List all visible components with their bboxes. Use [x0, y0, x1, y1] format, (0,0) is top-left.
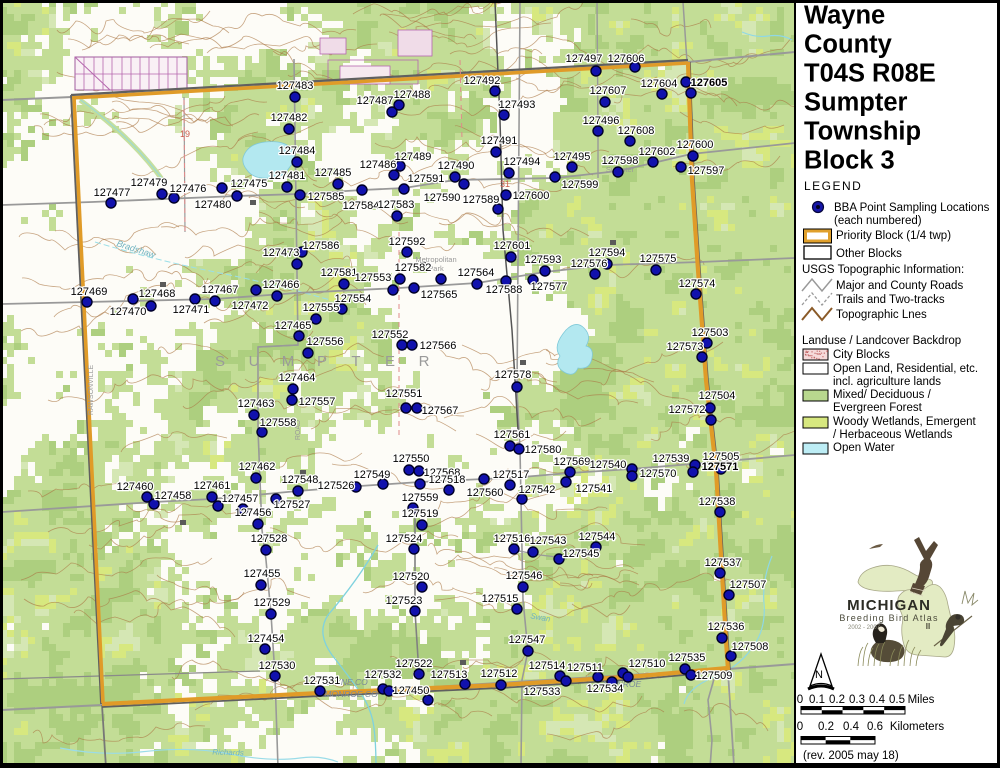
svg-text:127510: 127510	[629, 658, 666, 670]
svg-text:0: 0	[797, 694, 803, 706]
svg-text:S: S	[215, 353, 225, 370]
svg-text:127462: 127462	[239, 461, 276, 473]
svg-text:127583: 127583	[378, 199, 415, 211]
svg-text:127533: 127533	[524, 686, 561, 698]
svg-text:2002 - 2007: 2002 - 2007	[848, 625, 881, 631]
svg-text:127514: 127514	[529, 660, 566, 672]
svg-text:127522: 127522	[396, 658, 433, 670]
svg-text:U: U	[249, 353, 260, 370]
svg-text:127601: 127601	[494, 240, 531, 252]
svg-text:Mixed/ Deciduous /: Mixed/ Deciduous /	[833, 389, 932, 401]
svg-text:127545: 127545	[563, 548, 600, 560]
svg-text:Trails and Two-tracks: Trails and Two-tracks	[836, 294, 945, 306]
svg-text:incl. agriculture lands: incl. agriculture lands	[833, 376, 941, 388]
svg-text:127472: 127472	[232, 300, 269, 312]
svg-text:127454: 127454	[248, 633, 285, 645]
svg-text:127511: 127511	[567, 662, 603, 674]
svg-text:127512: 127512	[481, 668, 518, 680]
svg-text:127477: 127477	[94, 187, 131, 199]
svg-text:127479: 127479	[131, 177, 168, 189]
svg-text:127552: 127552	[372, 329, 409, 341]
svg-text:M: M	[282, 353, 295, 370]
svg-text:127575: 127575	[640, 253, 677, 265]
svg-text:127515: 127515	[482, 593, 519, 605]
svg-text:127528: 127528	[251, 533, 288, 545]
svg-text:127524: 127524	[386, 533, 423, 545]
svg-text:127492: 127492	[464, 75, 501, 87]
svg-text:Sumpter: Sumpter	[804, 89, 908, 117]
svg-text:LEGEND: LEGEND	[804, 179, 862, 193]
svg-text:127592: 127592	[389, 236, 426, 248]
svg-text:127569: 127569	[554, 456, 591, 468]
svg-text:0.3: 0.3	[849, 694, 865, 706]
svg-text:0.4: 0.4	[869, 694, 886, 706]
svg-text:Evergreen Forest: Evergreen Forest	[833, 402, 923, 414]
svg-text:127482: 127482	[271, 112, 308, 124]
svg-text:127534: 127534	[587, 683, 624, 695]
svg-text:127513: 127513	[431, 669, 468, 681]
svg-text:127487: 127487	[357, 95, 394, 107]
svg-text:127600: 127600	[513, 190, 550, 202]
svg-text:MICHIGAN: MICHIGAN	[847, 597, 931, 614]
svg-text:127463: 127463	[238, 398, 275, 410]
svg-text:127456: 127456	[235, 507, 272, 519]
svg-text:127517: 127517	[493, 469, 530, 481]
svg-text:County: County	[804, 31, 893, 59]
svg-text:127531: 127531	[304, 675, 341, 687]
svg-text:127460: 127460	[117, 481, 154, 493]
svg-text:127508: 127508	[732, 641, 769, 653]
svg-text:Landuse / Landcover Backdrop: Landuse / Landcover Backdrop	[802, 335, 961, 347]
svg-text:127586: 127586	[303, 240, 340, 252]
svg-text:127493: 127493	[499, 99, 536, 111]
svg-text:127455: 127455	[244, 568, 281, 580]
svg-text:127565: 127565	[421, 289, 458, 301]
svg-text:127529: 127529	[254, 597, 291, 609]
svg-text:MONROE CO: MONROE CO	[324, 689, 378, 699]
svg-text:0.2: 0.2	[818, 721, 834, 733]
svg-text:City Blocks: City Blocks	[833, 349, 890, 361]
svg-text:N: N	[815, 669, 823, 681]
svg-text:0.5: 0.5	[889, 694, 905, 706]
svg-text:127520: 127520	[393, 571, 430, 583]
svg-text:127466: 127466	[263, 279, 300, 291]
svg-text:127503: 127503	[692, 327, 729, 339]
svg-text:Topographic Lnes: Topographic Lnes	[836, 309, 927, 321]
svg-text:Miles: Miles	[908, 694, 935, 706]
svg-text:127473: 127473	[263, 247, 300, 259]
svg-text:127573: 127573	[667, 341, 704, 353]
svg-text:127572: 127572	[669, 404, 706, 416]
svg-text:127526: 127526	[318, 480, 355, 492]
svg-text:127570: 127570	[640, 468, 677, 480]
svg-text:127600: 127600	[677, 139, 714, 151]
svg-text:(each numbered): (each numbered)	[834, 215, 922, 227]
svg-text:127558: 127558	[260, 417, 297, 429]
svg-text:127599: 127599	[562, 179, 599, 191]
svg-text:127464: 127464	[279, 372, 316, 384]
svg-text:Kilometers: Kilometers	[890, 721, 945, 733]
svg-text:/ Herbaceous Wetlands: / Herbaceous Wetlands	[833, 429, 953, 441]
svg-text:Major and County Roads: Major and County Roads	[836, 280, 963, 292]
svg-text:Block 3: Block 3	[804, 147, 895, 175]
svg-text:127497: 127497	[566, 53, 603, 65]
svg-text:127475: 127475	[231, 178, 268, 190]
svg-text:127553: 127553	[355, 272, 392, 284]
svg-text:127494: 127494	[504, 156, 541, 168]
svg-text:127461: 127461	[194, 480, 231, 492]
svg-text:II: II	[926, 622, 930, 631]
svg-text:127535: 127535	[669, 652, 706, 664]
svg-text:127584: 127584	[343, 200, 380, 212]
svg-text:127470: 127470	[110, 306, 147, 318]
svg-text:127486: 127486	[360, 159, 397, 171]
svg-text:127571: 127571	[702, 461, 739, 473]
svg-text:127598: 127598	[602, 155, 639, 167]
svg-text:127519: 127519	[402, 508, 439, 520]
svg-text:127561: 127561	[494, 429, 531, 441]
svg-text:E: E	[385, 353, 395, 370]
svg-text:RAWSONVILLE: RAWSONVILLE	[88, 365, 95, 416]
svg-text:127608: 127608	[618, 125, 655, 137]
svg-text:127559: 127559	[402, 492, 439, 504]
svg-text:127536: 127536	[708, 621, 745, 633]
svg-text:P: P	[317, 353, 327, 370]
svg-text:127605: 127605	[691, 77, 728, 89]
svg-text:127574: 127574	[679, 278, 716, 290]
svg-text:127527: 127527	[274, 499, 311, 511]
svg-text:127495: 127495	[554, 151, 591, 163]
svg-text:127594: 127594	[589, 247, 626, 259]
svg-text:127606: 127606	[608, 53, 645, 65]
svg-text:127578: 127578	[495, 369, 532, 381]
svg-text:127541: 127541	[576, 483, 613, 495]
svg-text:127516: 127516	[494, 533, 531, 545]
svg-text:127577: 127577	[531, 281, 568, 293]
svg-text:127481: 127481	[269, 170, 306, 182]
svg-text:127591: 127591	[408, 173, 445, 185]
svg-text:R: R	[419, 353, 430, 370]
svg-text:127551: 127551	[386, 388, 423, 400]
svg-text:127547: 127547	[509, 634, 546, 646]
svg-text:127566: 127566	[420, 340, 457, 352]
svg-text:127537: 127537	[705, 557, 742, 569]
svg-text:Wayne: Wayne	[804, 2, 885, 30]
svg-text:0: 0	[797, 721, 803, 733]
svg-text:127576: 127576	[571, 258, 608, 270]
svg-text:0.2: 0.2	[829, 694, 845, 706]
svg-text:127580: 127580	[525, 444, 562, 456]
svg-text:127507: 127507	[730, 579, 767, 591]
svg-text:127554: 127554	[335, 293, 372, 305]
svg-text:127471: 127471	[173, 304, 210, 316]
svg-text:Open Land, Residential, etc.: Open Land, Residential, etc.	[833, 363, 978, 375]
svg-text:127588: 127588	[486, 284, 523, 296]
svg-text:127450: 127450	[393, 685, 430, 697]
svg-text:127556: 127556	[307, 336, 344, 348]
svg-text:127523: 127523	[386, 595, 423, 607]
svg-text:127457: 127457	[222, 493, 259, 505]
svg-text:127490: 127490	[438, 160, 475, 172]
svg-text:127484: 127484	[279, 145, 316, 157]
svg-text:127488: 127488	[394, 89, 431, 101]
svg-text:127468: 127468	[139, 288, 176, 300]
svg-text:127607: 127607	[590, 85, 627, 97]
svg-text:127549: 127549	[354, 469, 391, 481]
svg-text:127496: 127496	[583, 115, 620, 127]
svg-text:Priority Block (1/4 twp): Priority Block (1/4 twp)	[836, 230, 951, 242]
svg-text:127489: 127489	[395, 151, 432, 163]
svg-text:127585: 127585	[308, 191, 345, 203]
svg-text:(rev. 2005 may 18): (rev. 2005 may 18)	[803, 750, 899, 762]
svg-text:127544: 127544	[579, 531, 616, 543]
svg-text:127548: 127548	[282, 474, 319, 486]
svg-text:127465: 127465	[275, 320, 312, 332]
svg-text:127542: 127542	[519, 484, 556, 496]
svg-text:Other Blocks: Other Blocks	[836, 248, 902, 260]
svg-text:127483: 127483	[277, 80, 314, 92]
svg-text:Open Water: Open Water	[833, 442, 895, 454]
svg-text:127532: 127532	[365, 669, 402, 681]
svg-text:127557: 127557	[299, 396, 336, 408]
svg-text:Richards: Richards	[212, 747, 244, 757]
svg-text:BBA Point Sampling Locations: BBA Point Sampling Locations	[834, 202, 990, 214]
svg-text:127581: 127581	[321, 267, 358, 279]
svg-text:127476: 127476	[170, 183, 207, 195]
svg-text:127467: 127467	[202, 284, 239, 296]
svg-text:0.1: 0.1	[809, 694, 825, 706]
svg-text:127604: 127604	[641, 78, 678, 90]
svg-text:127593: 127593	[525, 254, 562, 266]
svg-text:127543: 127543	[530, 535, 567, 547]
svg-text:127540: 127540	[590, 459, 627, 471]
svg-text:127458: 127458	[155, 490, 192, 502]
svg-text:Woody Wetlands, Emergent: Woody Wetlands, Emergent	[833, 416, 977, 428]
svg-text:Township: Township	[804, 118, 921, 146]
svg-text:Breeding Bird Atlas: Breeding Bird Atlas	[839, 613, 938, 623]
svg-text:127539: 127539	[653, 453, 690, 465]
svg-text:0.4: 0.4	[843, 721, 860, 733]
svg-text:127485: 127485	[315, 167, 352, 179]
svg-text:127582: 127582	[395, 262, 432, 274]
svg-text:127597: 127597	[688, 165, 725, 177]
svg-text:127546: 127546	[506, 570, 543, 582]
svg-text:T: T	[351, 353, 360, 370]
svg-text:127538: 127538	[699, 496, 736, 508]
svg-text:127550: 127550	[393, 453, 430, 465]
svg-text:USGS Topographic Information:: USGS Topographic Information:	[802, 264, 964, 276]
svg-text:127504: 127504	[699, 390, 736, 402]
svg-text:19: 19	[180, 129, 190, 139]
svg-text:127509: 127509	[696, 670, 733, 682]
svg-text:0.6: 0.6	[867, 721, 883, 733]
svg-text:127560: 127560	[467, 487, 504, 499]
svg-text:127564: 127564	[458, 267, 495, 279]
svg-text:127602: 127602	[639, 146, 676, 158]
svg-text:127469: 127469	[71, 286, 108, 298]
svg-text:T04S R08E: T04S R08E	[804, 60, 936, 88]
svg-text:127518: 127518	[429, 474, 466, 486]
svg-text:127480: 127480	[195, 199, 232, 211]
svg-text:31: 31	[500, 179, 510, 189]
svg-text:127589: 127589	[463, 194, 500, 206]
svg-text:127590: 127590	[424, 192, 461, 204]
svg-text:127567: 127567	[422, 405, 459, 417]
svg-text:127530: 127530	[259, 660, 296, 672]
svg-text:127491: 127491	[481, 135, 518, 147]
